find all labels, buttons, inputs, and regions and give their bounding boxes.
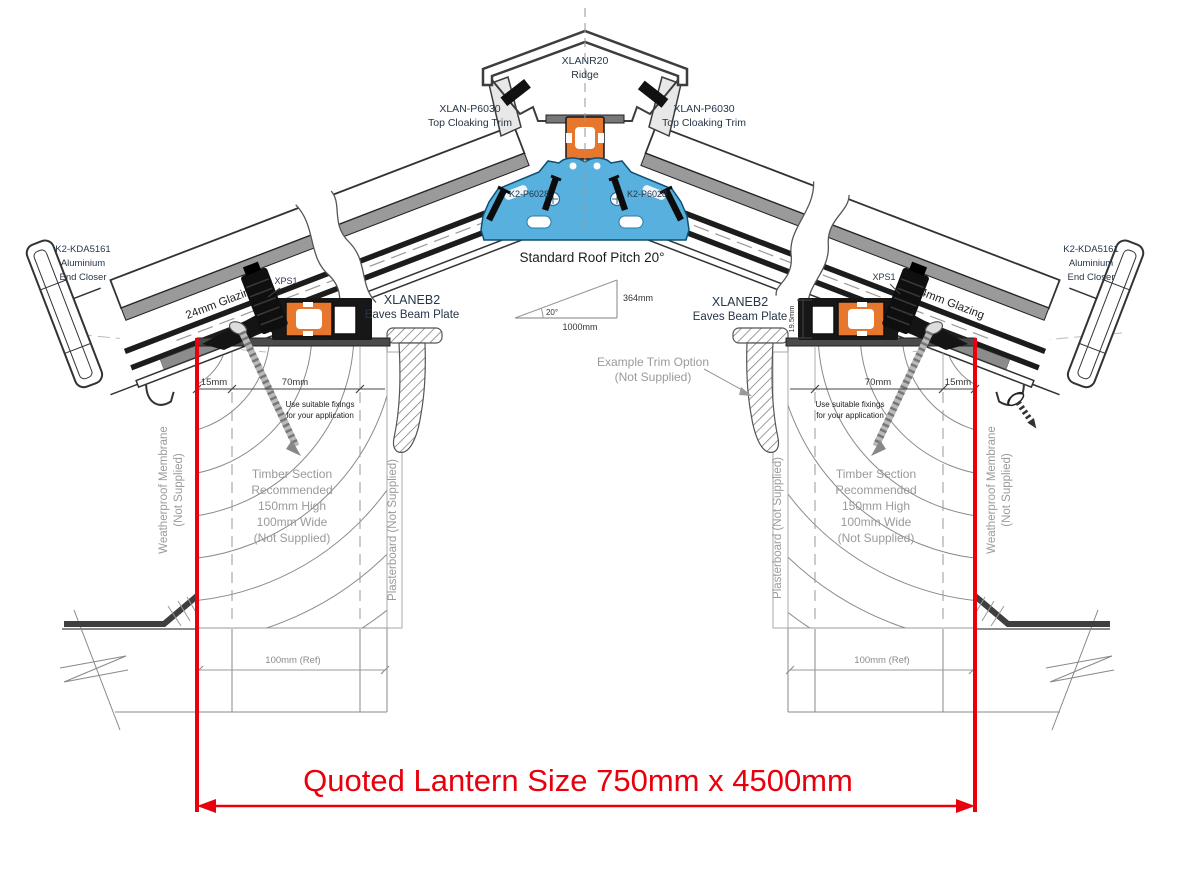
left-end-closer-l2: Aluminium: [61, 258, 105, 269]
left-eaves-beam-code: XLANEB2: [384, 293, 440, 307]
left-clamp-code: XPS1: [274, 276, 297, 286]
right-ridge-fixing-code: K2-P6028: [627, 189, 667, 199]
pitch-rise: 364mm: [623, 293, 653, 303]
left-timber-note-l1: Timber Section: [252, 467, 332, 481]
technical-drawing-canvas: 24mm Glazing 24mm Glazing: [0, 0, 1184, 872]
left-eaves-beam-name: Eaves Beam Plate: [365, 309, 460, 321]
trim-option-line2: (Not Supplied): [615, 370, 692, 384]
right-membrane-note-l2: (Not Supplied): [1001, 453, 1013, 527]
left-trim-name: Top Cloaking Trim: [428, 117, 512, 129]
right-timber-note-l4: 100mm Wide: [841, 515, 912, 529]
right-timber-note-l2: Recommended: [835, 483, 916, 497]
dim-100mm-ref: 100mm (Ref): [265, 655, 320, 666]
left-end-closer-code: K2-KDA5161: [55, 244, 110, 255]
dim-70mm: 70mm: [282, 377, 308, 388]
pitch-indicator: Standard Roof Pitch 20° 20° 1000mm 364mm: [515, 250, 665, 332]
right-end-closer-code: K2-KDA5161: [1063, 244, 1118, 255]
right-trim-name: Top Cloaking Trim: [662, 117, 746, 129]
right-clamp-code: XPS1: [872, 272, 895, 282]
right-eaves-beam-name: Eaves Beam Plate: [693, 311, 788, 323]
arrow-left-icon: [197, 799, 216, 813]
left-timber-note-l2: Recommended: [251, 483, 332, 497]
left-end-closer-l3: End Closer: [60, 272, 107, 283]
break-line-icon: [60, 656, 128, 682]
right-timber-note-l3: 150mm High: [842, 499, 910, 513]
right-membrane-note-l1: Weatherproof Membrane: [986, 426, 998, 554]
dim-70mm: 70mm: [865, 377, 891, 388]
ridge-code: XLANR20: [562, 55, 609, 67]
fixing-note-line1: Use suitable fixings: [286, 400, 355, 409]
quoted-size-label: Quoted Lantern Size 750mm x 4500mm: [303, 763, 853, 798]
break-line-icon: [1046, 656, 1114, 682]
ridge-name: Ridge: [571, 69, 599, 81]
left-plasterboard-note: Plasterboard (Not Supplied): [387, 459, 399, 601]
roof-lantern-section-drawing: 24mm Glazing 24mm Glazing: [0, 0, 1184, 872]
trim-option-line1: Example Trim Option: [597, 355, 709, 369]
right-timber-note-l1: Timber Section: [836, 467, 916, 481]
right-plasterboard-note: Plasterboard (Not Supplied): [772, 457, 784, 599]
left-ridge-fixing-code: K2-P6028: [509, 189, 549, 199]
pitch-run: 1000mm: [562, 322, 597, 332]
pitch-angle: 20°: [546, 308, 558, 317]
right-end-closer-l2: Aluminium: [1069, 258, 1113, 269]
left-timber-note-l4: 100mm Wide: [257, 515, 328, 529]
left-membrane-note-l1: Weatherproof Membrane: [158, 426, 170, 554]
left-timber-note-l5: (Not Supplied): [254, 531, 331, 545]
left-trim-code: XLAN-P6030: [439, 103, 500, 115]
pitch-title: Standard Roof Pitch 20°: [520, 250, 665, 265]
left-timber-note-l3: 150mm High: [258, 499, 326, 513]
dim-15mm: 15mm: [945, 377, 971, 388]
dim-100mm-ref: 100mm (Ref): [854, 655, 909, 666]
right-trim-code: XLAN-P6030: [673, 103, 734, 115]
fixing-note-line1: Use suitable fixings: [816, 400, 885, 409]
arrow-right-icon: [956, 799, 975, 813]
right-timber-note-l5: (Not Supplied): [838, 531, 915, 545]
right-eaves-beam-code: XLANEB2: [712, 295, 768, 309]
dim-15mm: 15mm: [201, 377, 227, 388]
dim-19-5mm: 19.5mm: [787, 305, 796, 332]
right-end-closer-l3: End Closer: [1068, 272, 1115, 283]
fixing-note-line2: for your application: [286, 411, 354, 420]
left-membrane-note-l2: (Not Supplied): [173, 453, 185, 527]
fixing-note-line2: for your application: [816, 411, 884, 420]
loose-screw-icon: [1006, 390, 1044, 434]
trim-option-leader: [704, 369, 744, 391]
